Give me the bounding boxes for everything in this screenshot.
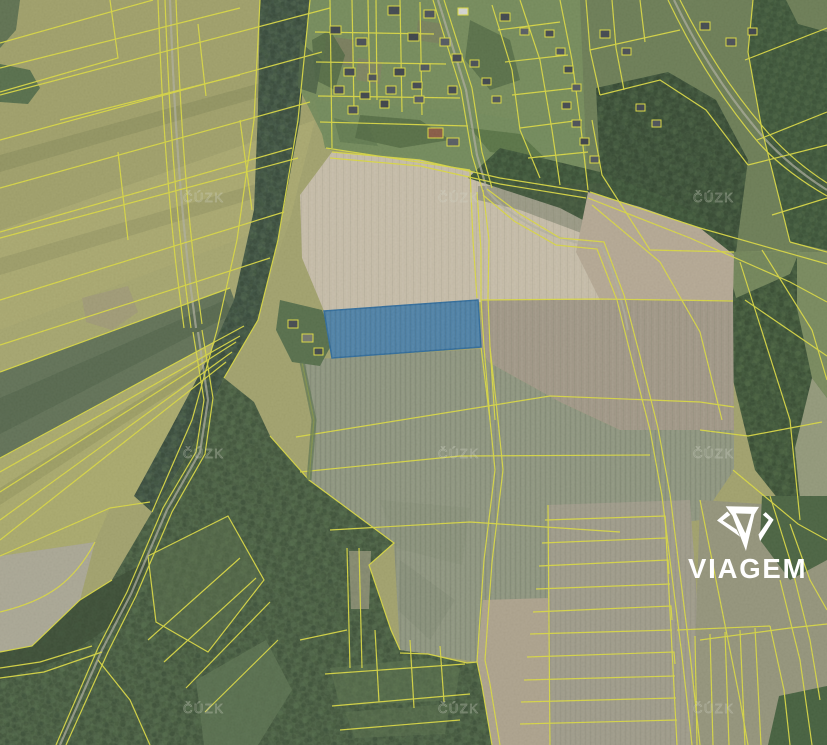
svg-text:ČÚZK: ČÚZK — [438, 446, 479, 461]
svg-text:ČÚZK: ČÚZK — [438, 701, 479, 716]
svg-text:ČÚZK: ČÚZK — [693, 701, 734, 716]
svg-text:ČÚZK: ČÚZK — [183, 446, 224, 461]
svg-text:ČÚZK: ČÚZK — [183, 701, 224, 716]
svg-text:VIAGEM: VIAGEM — [688, 553, 807, 584]
svg-text:ČÚZK: ČÚZK — [693, 190, 734, 205]
svg-text:ČÚZK: ČÚZK — [183, 190, 224, 205]
svg-text:ČÚZK: ČÚZK — [438, 190, 479, 205]
svg-text:ČÚZK: ČÚZK — [693, 446, 734, 461]
